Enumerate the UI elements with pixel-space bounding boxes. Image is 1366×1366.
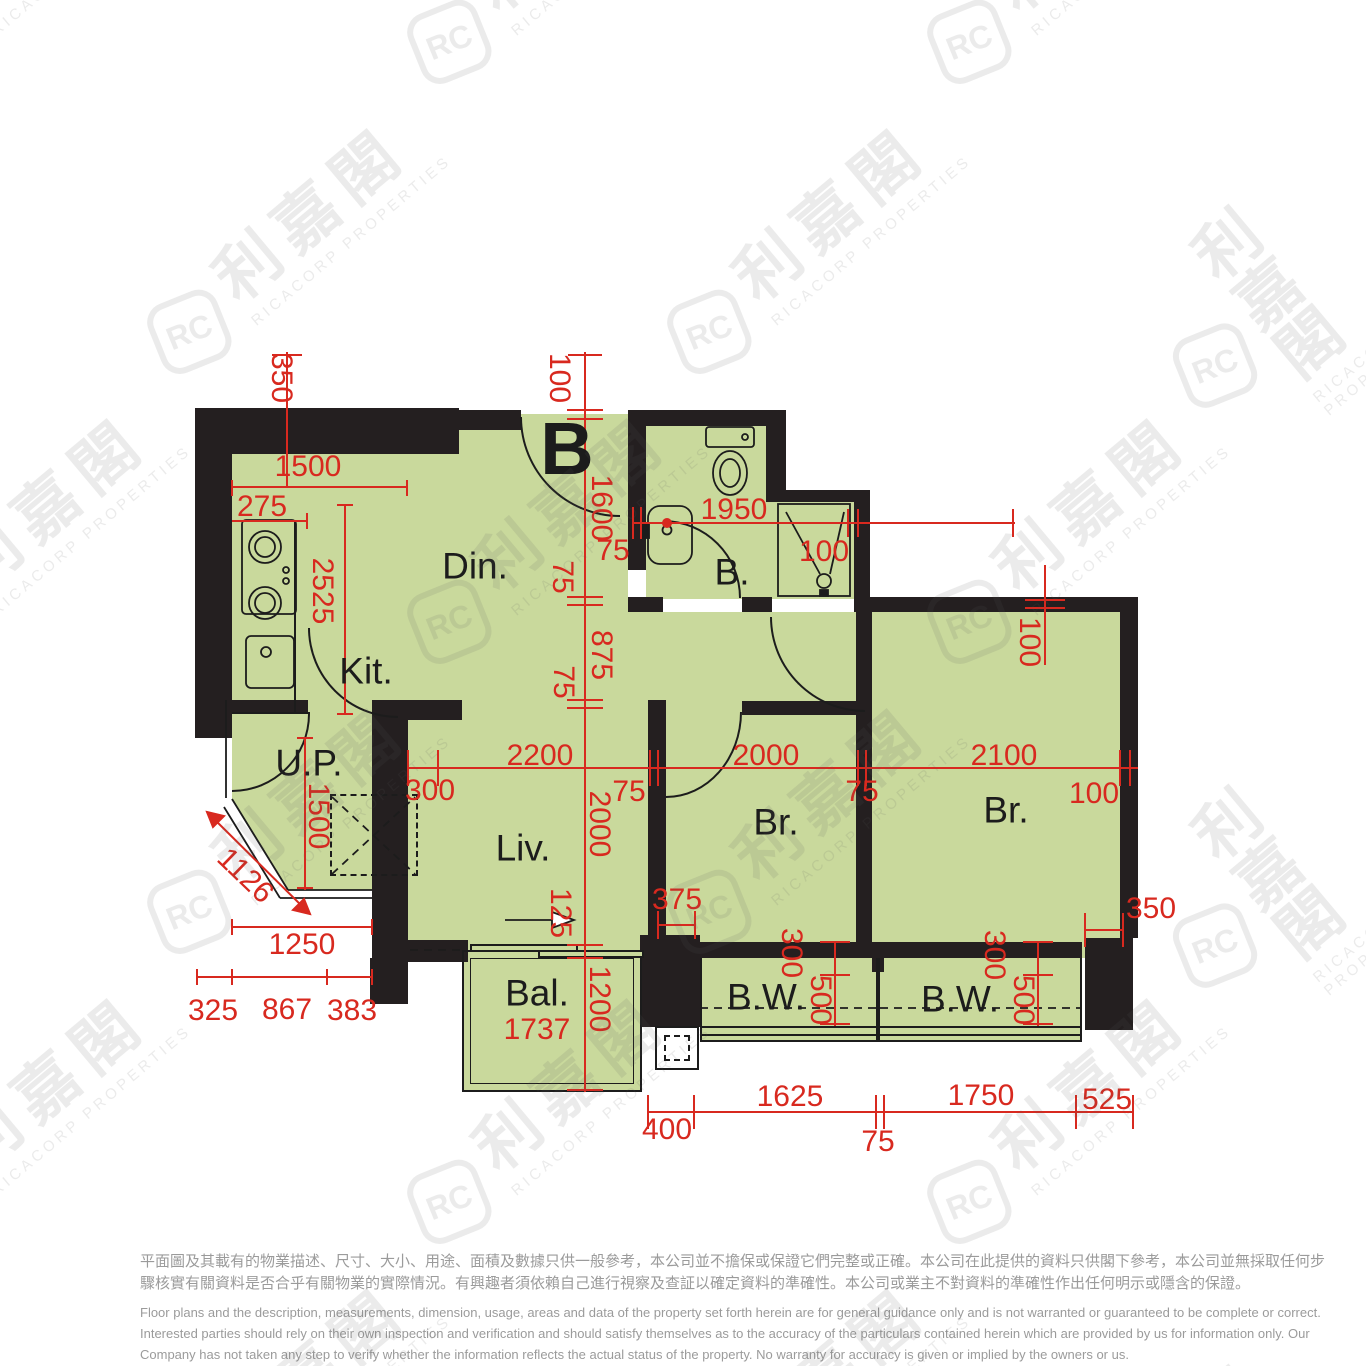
- ricacorp-logo-icon: RC: [141, 863, 237, 959]
- ricacorp-watermark: RC利嘉閣RICACORP PROPERTIES: [653, 98, 975, 388]
- ricacorp-watermark: RC利嘉閣RICACORP PROPERTIES: [393, 968, 715, 1258]
- ricacorp-logo-icon: RC: [921, 0, 1017, 90]
- watermark-cjk: 利嘉閣: [463, 0, 700, 22]
- watermark-latin: RICACORP PROPERTIES: [0, 0, 195, 39]
- ricacorp-logo-icon: RC: [401, 0, 497, 90]
- ricacorp-watermark: RC利嘉閣RICACORP PROPERTIES: [133, 98, 455, 388]
- ricacorp-logo-icon: RC: [401, 1153, 497, 1249]
- watermark-latin: RICACORP PROPERTIES: [1028, 442, 1235, 619]
- watermark-latin: RICACORP PROPERTIES: [508, 0, 715, 39]
- ricacorp-watermark: RC利嘉閣RICACORP PROPERTIES: [653, 1258, 975, 1366]
- ricacorp-watermark: RC利嘉閣RICACORP PROPERTIES: [913, 388, 1235, 678]
- watermark-cjk: 利嘉閣: [0, 0, 180, 22]
- ricacorp-logo-icon: RC: [921, 573, 1017, 669]
- ricacorp-watermark: RC利嘉閣RICACORP PROPERTIES: [913, 0, 1235, 99]
- watermark-cjk: 利嘉閣: [203, 678, 440, 891]
- ricacorp-watermark: RC利嘉閣RICACORP PROPERTIES: [913, 968, 1235, 1258]
- watermark-latin: RICACORP PROPERTIES: [248, 152, 455, 329]
- watermark-cjk: 利嘉閣: [723, 1258, 960, 1366]
- ricacorp-watermark: RC利嘉閣RICACORP PROPERTIES: [653, 678, 975, 968]
- watermark-cjk: 利嘉閣: [1183, 734, 1366, 969]
- watermark-latin: RICACORP PROPERTIES: [0, 442, 195, 619]
- ricacorp-watermark: RC利嘉閣RICACORP PROPERTIES: [1112, 734, 1366, 1059]
- watermark-cjk: 利嘉閣: [1183, 154, 1366, 389]
- watermark-layer: RC利嘉閣RICACORP PROPERTIESRC利嘉閣RICACORP PR…: [0, 0, 1366, 1366]
- watermark-latin: RICACORP PROPERTIES: [1028, 0, 1235, 39]
- watermark-cjk: 利嘉閣: [463, 388, 700, 601]
- ricacorp-logo-icon: RC: [1167, 317, 1263, 413]
- watermark-cjk: 利嘉閣: [983, 968, 1220, 1181]
- ricacorp-watermark: RC利嘉閣RICACORP PROPERTIES: [393, 0, 715, 99]
- watermark-cjk: 利嘉閣: [723, 678, 960, 891]
- watermark-latin: RICACORP PROPERTIES: [768, 152, 975, 329]
- watermark-latin: RICACORP PROPERTIES: [768, 1312, 975, 1366]
- ricacorp-watermark: RC利嘉閣RICACORP PROPERTIES: [133, 678, 455, 968]
- watermark-latin: RICACORP PROPERTIES: [508, 442, 715, 619]
- watermark-latin: RICACORP PROPERTIES: [248, 732, 455, 909]
- ricacorp-logo-icon: RC: [141, 283, 237, 379]
- watermark-cjk: 利嘉閣: [983, 0, 1220, 22]
- ricacorp-logo-icon: RC: [661, 863, 757, 959]
- ricacorp-watermark: RC利嘉閣RICACORP PROPERTIES: [0, 388, 195, 678]
- watermark-latin: RICACORP PROPERTIES: [1310, 885, 1366, 999]
- ricacorp-logo-icon: RC: [921, 1153, 1017, 1249]
- ricacorp-watermark: RC利嘉閣RICACORP PROPERTIES: [1112, 154, 1366, 479]
- watermark-cjk: 利嘉閣: [203, 1258, 440, 1366]
- watermark-cjk: 利嘉閣: [1183, 1314, 1366, 1366]
- watermark-cjk: 利嘉閣: [723, 98, 960, 311]
- watermark-latin: RICACORP PROPERTIES: [1028, 1022, 1235, 1199]
- ricacorp-watermark: RC利嘉閣RICACORP PROPERTIES: [393, 388, 715, 678]
- watermark-cjk: 利嘉閣: [983, 388, 1220, 601]
- watermark-cjk: 利嘉閣: [203, 98, 440, 311]
- ricacorp-logo-icon: RC: [661, 283, 757, 379]
- floor-plan: B Din.Kit.B.U.P.Liv.Br.Br.Bal.B.W.B.W.35…: [0, 0, 1366, 1366]
- watermark-latin: RICACORP PROPERTIES: [508, 1022, 715, 1199]
- ricacorp-watermark: RC利嘉閣RICACORP PROPERTIES: [0, 0, 195, 99]
- ricacorp-watermark: RC利嘉閣RICACORP PROPERTIES: [1112, 1314, 1366, 1366]
- watermark-latin: RICACORP PROPERTIES: [768, 732, 975, 909]
- ricacorp-watermark: RC利嘉閣RICACORP PROPERTIES: [133, 1258, 455, 1366]
- ricacorp-logo-icon: RC: [401, 573, 497, 669]
- watermark-latin: RICACORP PROPERTIES: [0, 1022, 195, 1199]
- ricacorp-watermark: RC利嘉閣RICACORP PROPERTIES: [0, 968, 195, 1258]
- watermark-cjk: 利嘉閣: [0, 388, 180, 601]
- watermark-cjk: 利嘉閣: [463, 968, 700, 1181]
- watermark-latin: RICACORP PROPERTIES: [1310, 305, 1366, 419]
- watermark-latin: RICACORP PROPERTIES: [248, 1312, 455, 1366]
- ricacorp-logo-icon: RC: [1167, 897, 1263, 993]
- watermark-cjk: 利嘉閣: [0, 968, 180, 1181]
